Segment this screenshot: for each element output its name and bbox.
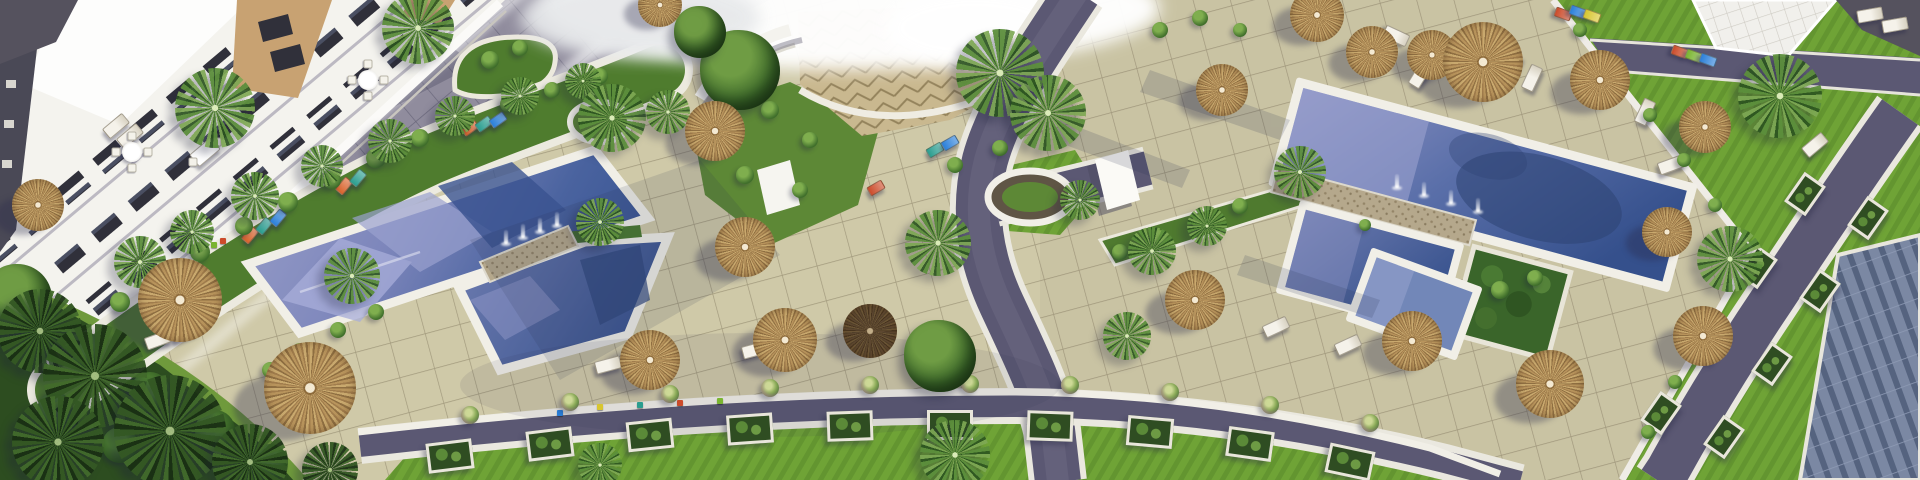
palm-tree — [1128, 227, 1176, 275]
palm-tree — [170, 210, 214, 254]
shrub — [110, 292, 130, 312]
palm-tree — [501, 77, 539, 115]
shrub — [761, 101, 779, 119]
straw-parasol — [843, 304, 897, 358]
planter-box — [525, 426, 574, 461]
palm-tree — [905, 210, 971, 276]
shrub — [802, 132, 818, 148]
palm-tree — [301, 145, 343, 187]
shrub — [1359, 219, 1371, 231]
shrub — [1641, 425, 1655, 439]
shrub — [1232, 198, 1248, 214]
mosaic-tile — [211, 242, 217, 248]
palm-tree — [435, 96, 475, 136]
aerial-resort-render: Top-down 3D architectural rendering of a… — [0, 0, 1920, 480]
leafy-tree — [904, 320, 976, 392]
straw-parasol — [1516, 350, 1584, 418]
straw-parasol — [1165, 270, 1225, 330]
straw-parasol — [685, 101, 745, 161]
straw-parasol — [1443, 22, 1523, 102]
sun-lounger-colored — [1698, 52, 1717, 67]
palm-tree — [1187, 206, 1227, 246]
flower-shrub — [661, 385, 679, 403]
straw-parasol — [620, 330, 680, 390]
planter-box — [1703, 415, 1745, 459]
planter-box — [1784, 172, 1826, 216]
palm-tree — [920, 420, 990, 480]
outdoor-chair — [364, 60, 373, 69]
palm-tree — [576, 198, 624, 246]
sun-lounger — [1521, 63, 1544, 92]
flower-shrub — [1361, 414, 1379, 432]
palm-tree — [1274, 146, 1326, 198]
shrub — [1192, 10, 1208, 26]
shrub — [736, 166, 754, 184]
outdoor-chair — [348, 76, 357, 85]
shrub — [512, 40, 528, 56]
sun-lounger — [1856, 6, 1884, 23]
straw-parasol — [12, 179, 64, 231]
planter-box — [1225, 426, 1275, 462]
shrub — [1152, 22, 1168, 38]
straw-parasol — [1679, 101, 1731, 153]
straw-parasol — [264, 342, 356, 434]
shrub — [1112, 244, 1128, 260]
palm-tree — [578, 84, 646, 152]
planter-box — [826, 410, 873, 442]
sun-lounger-colored — [1582, 8, 1601, 23]
planter-box — [1026, 410, 1073, 442]
palm-tree — [324, 248, 380, 304]
mosaic-tile — [677, 400, 683, 406]
planter-box — [1799, 269, 1841, 313]
flower-shrub — [1061, 376, 1079, 394]
shrub — [1677, 153, 1691, 167]
straw-parasol — [1196, 64, 1248, 116]
palm-tree — [1697, 226, 1763, 292]
palm-tree — [1103, 312, 1151, 360]
flower-shrub — [561, 393, 579, 411]
scene-objects — [0, 0, 1920, 480]
mosaic-tile — [717, 398, 723, 404]
straw-parasol — [1382, 311, 1442, 371]
straw-parasol — [1673, 306, 1733, 366]
shrub — [1708, 198, 1722, 212]
fountain-jet — [1422, 182, 1426, 196]
straw-parasol — [753, 308, 817, 372]
palm-tree — [578, 443, 622, 480]
shrub — [481, 51, 499, 69]
shrub — [947, 157, 963, 173]
sun-lounger-colored — [940, 134, 960, 151]
straw-parasol — [715, 217, 775, 277]
palm-tree — [1738, 54, 1822, 138]
planter-box — [1126, 415, 1174, 449]
sun-lounger — [1801, 132, 1829, 159]
outdoor-chair — [189, 158, 198, 167]
leafy-tree — [674, 6, 726, 58]
flower-shrub — [461, 406, 479, 424]
flower-shrub — [761, 379, 779, 397]
palm-tree — [382, 0, 454, 64]
fountain-jet — [521, 224, 525, 238]
mosaic-tile — [637, 402, 643, 408]
palm-tree — [231, 172, 279, 220]
shrub — [368, 304, 384, 320]
outdoor-chair — [364, 92, 373, 101]
fountain-jet — [504, 230, 508, 244]
fountain-jet — [1476, 198, 1480, 212]
planter-box — [1751, 342, 1793, 386]
shrub — [544, 82, 560, 98]
shrub — [1643, 108, 1657, 122]
palm-tree — [302, 442, 358, 480]
planter-box — [726, 412, 774, 445]
sun-lounger-colored — [488, 111, 508, 129]
outdoor-chair — [128, 132, 137, 141]
planter-box — [425, 438, 474, 473]
shrub — [330, 322, 346, 338]
straw-parasol — [1642, 207, 1692, 257]
outdoor-chair — [128, 164, 137, 173]
flower-shrub — [1261, 396, 1279, 414]
sun-lounger-colored — [866, 179, 886, 196]
shrub — [1668, 375, 1682, 389]
sun-lounger — [1261, 316, 1290, 339]
fountain-jet — [555, 212, 559, 226]
outdoor-chair — [380, 76, 389, 85]
shrub — [992, 140, 1008, 156]
outdoor-table — [122, 142, 142, 162]
palm-tree — [114, 375, 226, 480]
fountain-jet — [538, 218, 542, 232]
palm-tree — [368, 119, 412, 163]
palm-tree — [1060, 180, 1100, 220]
outdoor-chair — [144, 148, 153, 157]
shrub — [1527, 270, 1543, 286]
straw-parasol — [138, 258, 222, 342]
planter-box — [1847, 196, 1889, 240]
straw-parasol — [1346, 26, 1398, 78]
shrub — [278, 192, 298, 212]
sun-lounger — [1333, 334, 1362, 357]
fountain-jet — [1449, 190, 1453, 204]
outdoor-table — [358, 70, 378, 90]
mosaic-tile — [220, 238, 226, 244]
palm-tree — [646, 90, 690, 134]
straw-parasol — [1570, 50, 1630, 110]
mosaic-tile — [557, 410, 563, 416]
outdoor-chair — [112, 148, 121, 157]
shrub — [411, 129, 429, 147]
planter-box — [1324, 443, 1375, 480]
shrub — [1491, 281, 1509, 299]
flower-shrub — [1161, 383, 1179, 401]
flower-shrub — [861, 376, 879, 394]
shrub — [1573, 23, 1587, 37]
palm-tree — [1010, 75, 1086, 151]
palm-tree — [12, 396, 104, 480]
fountain-jet — [1395, 174, 1399, 188]
shrub — [1233, 23, 1247, 37]
planter-box — [626, 418, 675, 453]
mosaic-tile — [597, 404, 603, 410]
palm-tree — [175, 68, 255, 148]
shrub — [792, 182, 808, 198]
sun-lounger — [1881, 16, 1909, 33]
